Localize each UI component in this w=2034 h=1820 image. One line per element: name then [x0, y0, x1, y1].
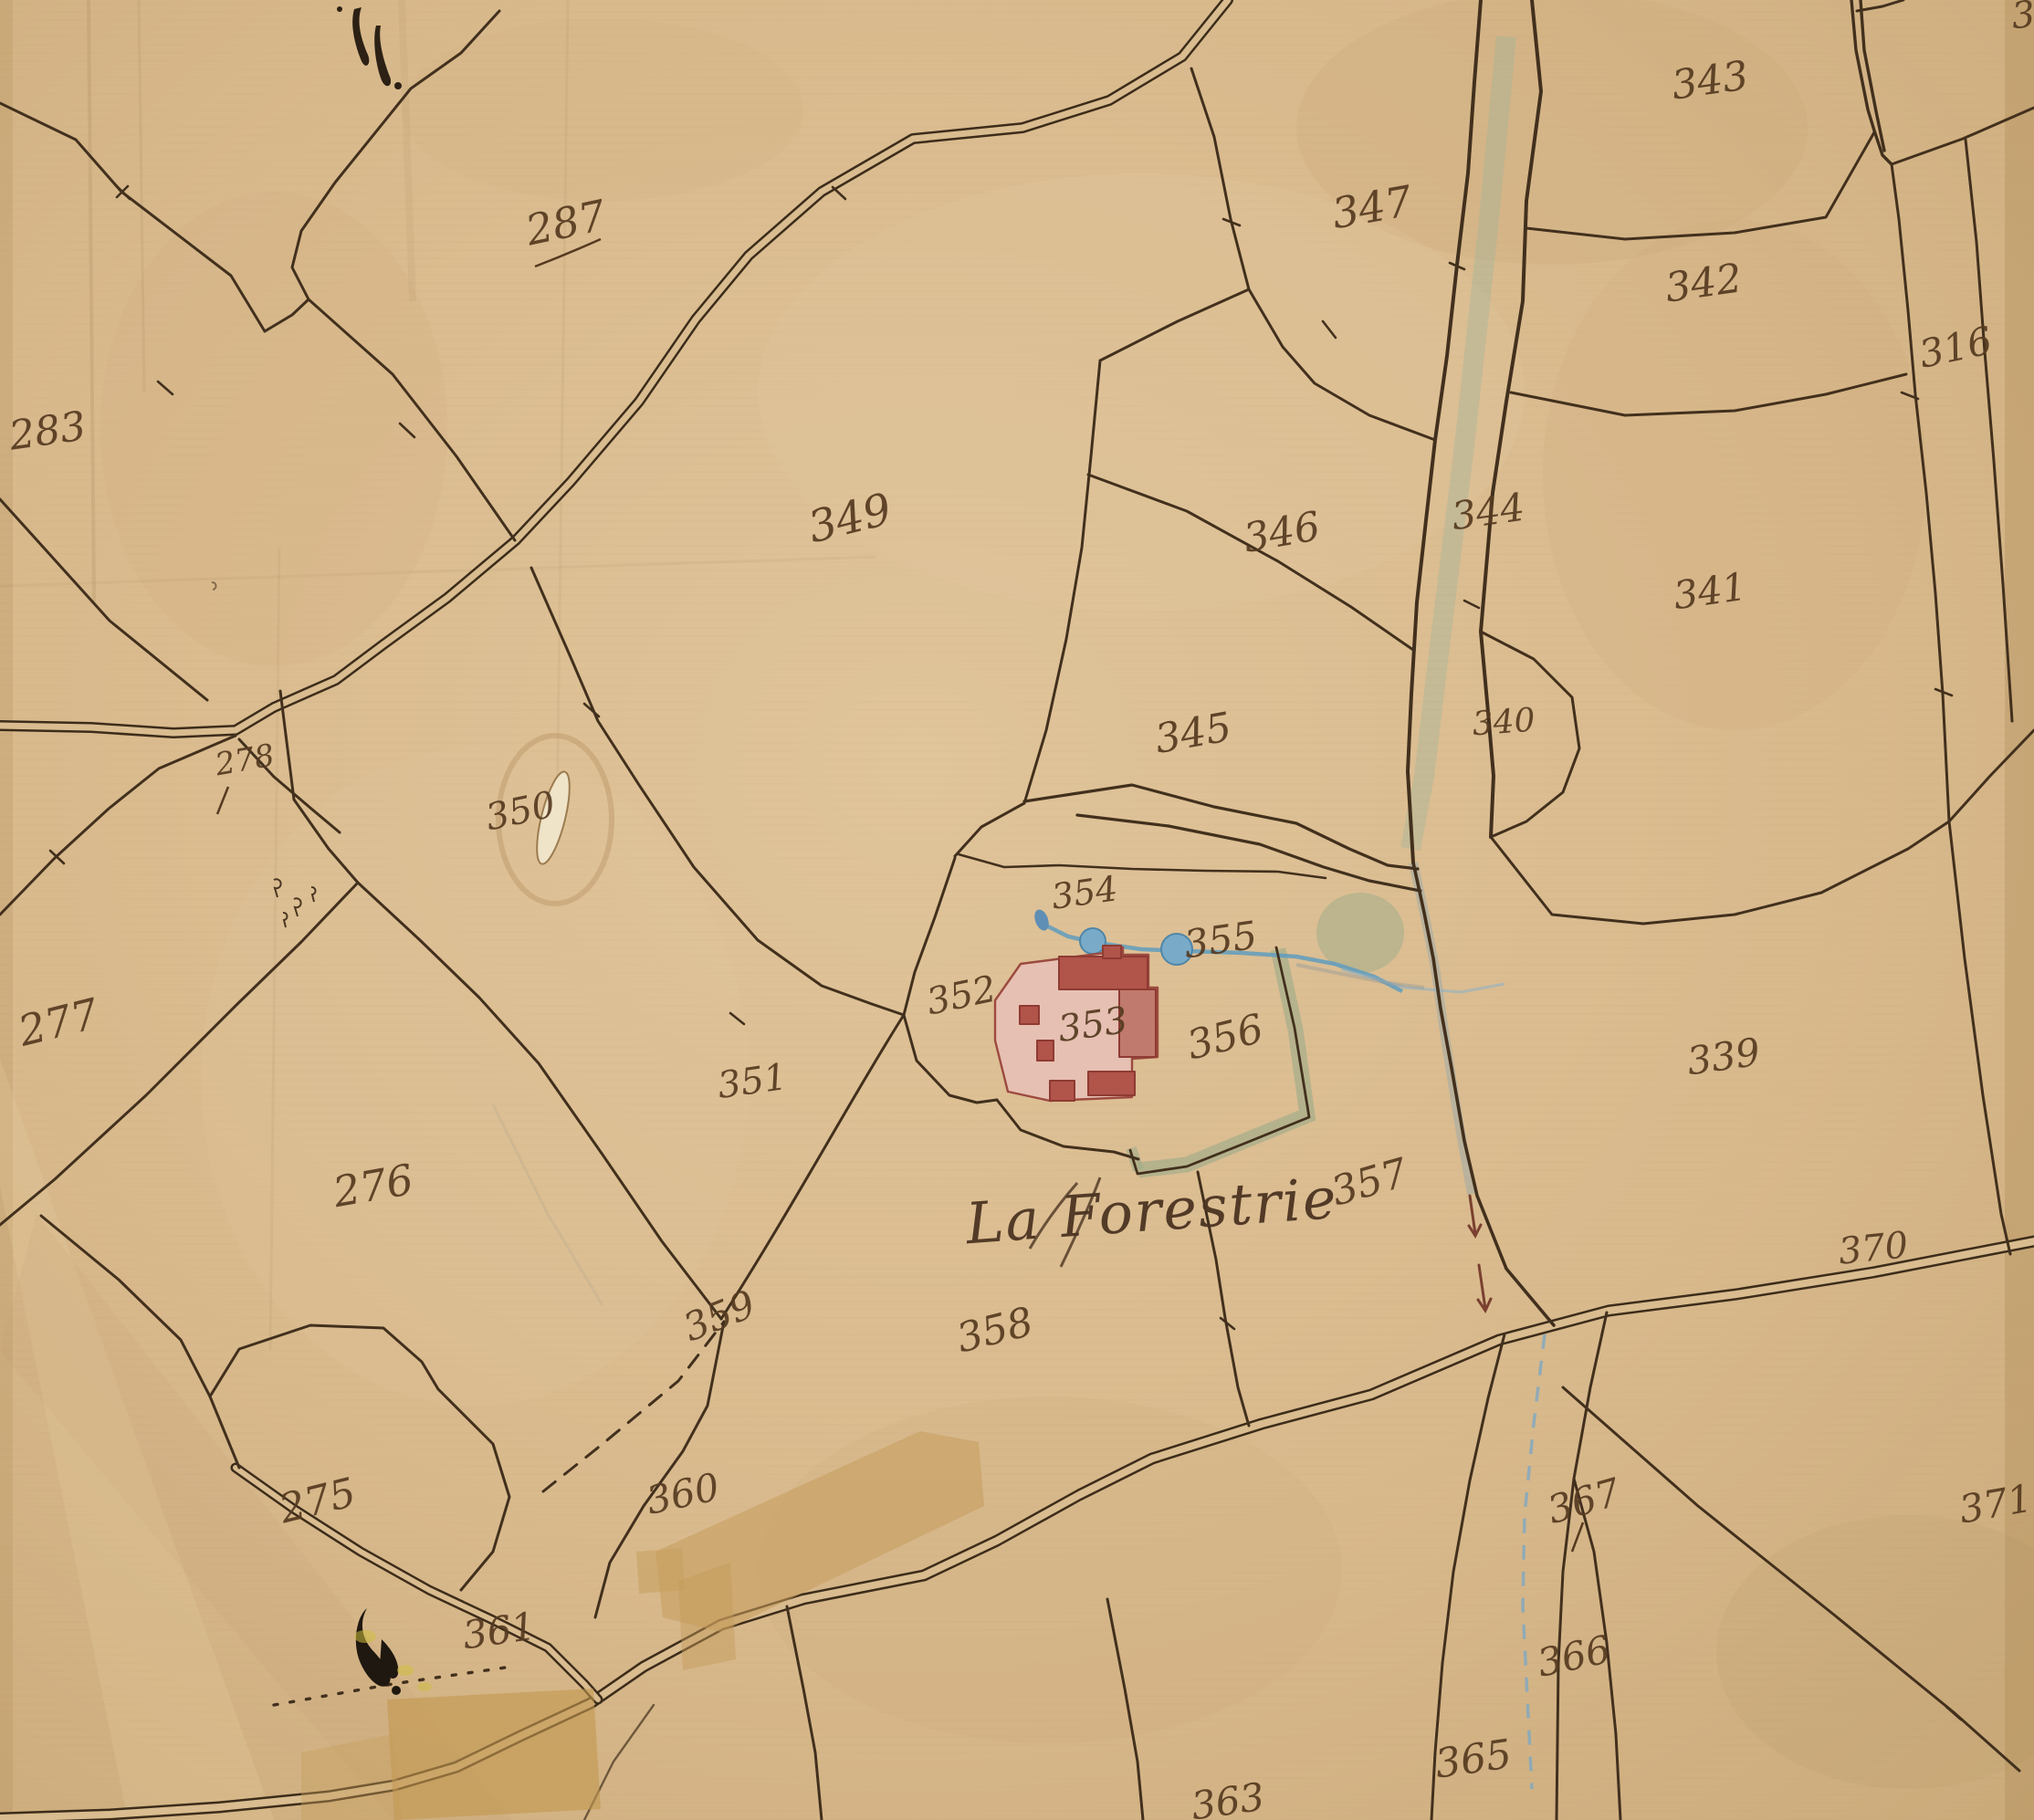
parcel-label-370: 370 [1837, 1224, 1911, 1273]
parcel-label-partial: 3 [2009, 0, 2034, 37]
yellow-dab-1 [354, 1630, 376, 1643]
yellow-dab-2 [397, 1665, 414, 1676]
outbuilding-south-2 [1088, 1072, 1135, 1095]
building-main-north [1059, 957, 1148, 989]
tape-bottom-left [387, 1689, 601, 1820]
outbuilding-west-1 [1020, 1006, 1039, 1024]
tape-strip-center-2 [678, 1563, 736, 1670]
tape-piece-small [636, 1548, 685, 1594]
parcel-label-340: 340 [1471, 702, 1536, 744]
outbuilding-south-1 [1050, 1081, 1075, 1101]
scanned-cadastral-map-page: { "map": { "kind": "old cadastral plan (… [0, 0, 2034, 1820]
pond-small [1080, 928, 1106, 954]
outbuilding-west-2 [1037, 1041, 1054, 1061]
yellow-dab-3 [417, 1682, 432, 1691]
building-north-tab [1103, 946, 1121, 958]
cadastral-map-canvas: 283 287 343 347 342 316 349 346 344 341 … [0, 0, 2034, 1820]
